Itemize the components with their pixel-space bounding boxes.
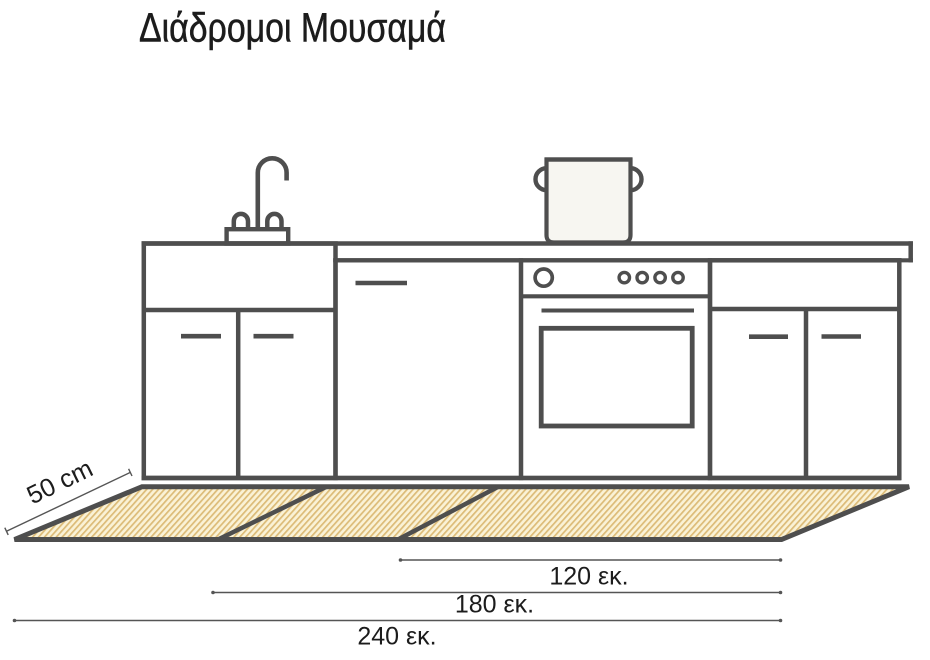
svg-text:180 εκ.: 180 εκ. (455, 591, 534, 619)
svg-text:120 εκ.: 120 εκ. (549, 563, 628, 591)
svg-text:Διάδρομοι Μουσαμά: Διάδρομοι Μουσαμά (139, 5, 446, 51)
svg-text:50 cm: 50 cm (23, 455, 98, 511)
svg-text:240 εκ.: 240 εκ. (357, 623, 436, 651)
